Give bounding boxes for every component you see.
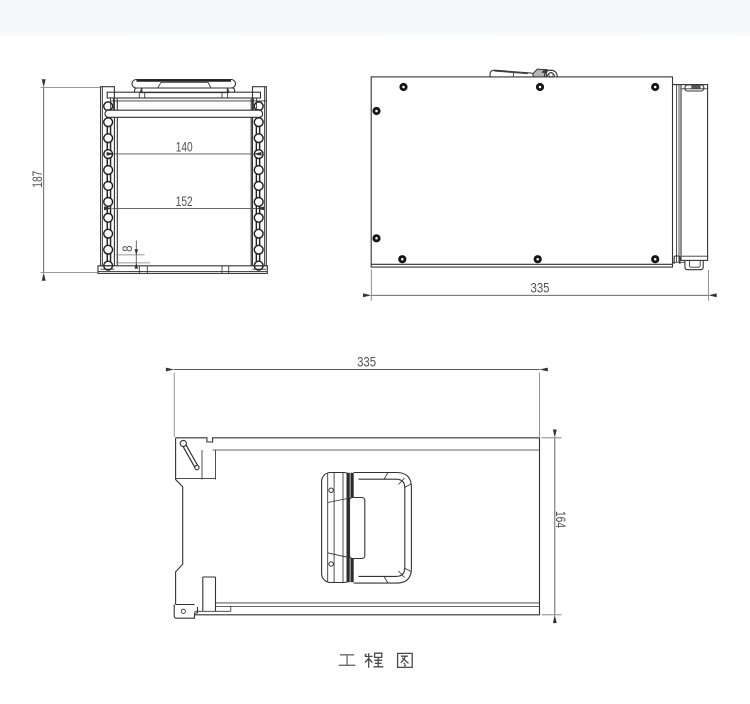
svg-text:187: 187	[30, 171, 45, 188]
svg-text:335: 335	[531, 281, 550, 296]
svg-text:8: 8	[120, 245, 135, 252]
svg-text:335: 335	[357, 354, 376, 369]
svg-text:152: 152	[176, 194, 193, 209]
svg-text:164: 164	[553, 511, 568, 528]
svg-text:140: 140	[176, 139, 193, 154]
